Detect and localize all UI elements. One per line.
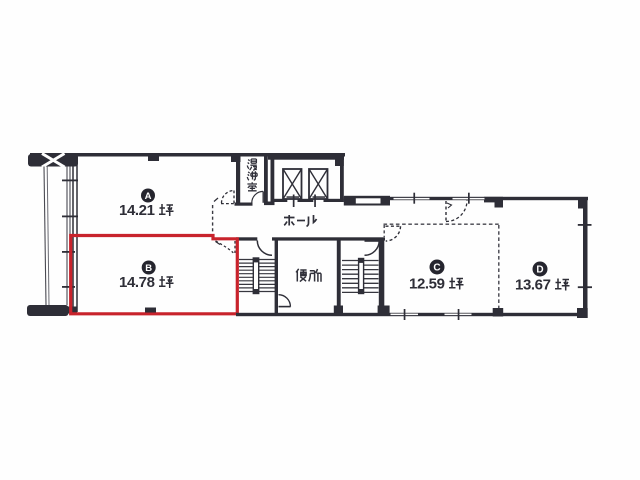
svg-text:14.78: 14.78 [119,274,155,291]
svg-text:12.59: 12.59 [409,276,445,293]
svg-text:A: A [145,191,152,202]
svg-text:D: D [536,265,543,276]
svg-text:C: C [433,263,440,274]
svg-text:B: B [145,263,152,274]
svg-text:14.21: 14.21 [119,202,155,219]
svg-text:13.67: 13.67 [515,277,551,294]
